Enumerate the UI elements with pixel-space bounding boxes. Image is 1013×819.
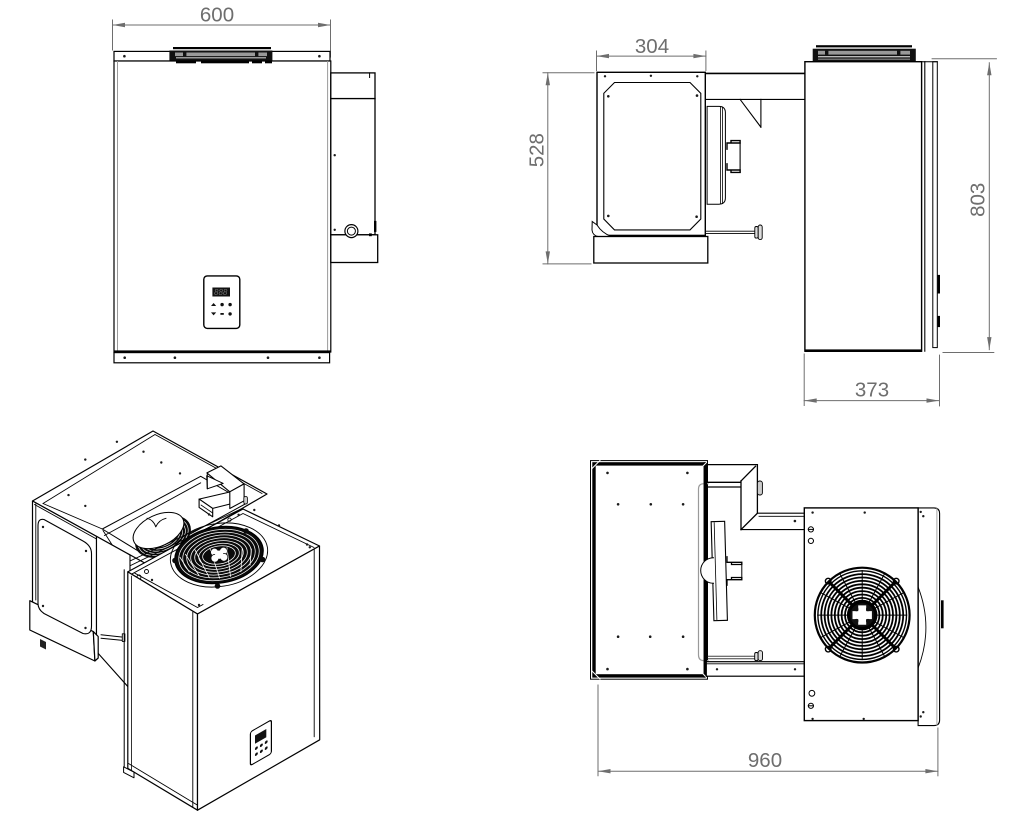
svg-text:528: 528 <box>526 133 549 167</box>
svg-text:373: 373 <box>855 379 889 402</box>
svg-text:304: 304 <box>635 35 669 58</box>
svg-text:888: 888 <box>214 288 228 297</box>
svg-text:803: 803 <box>967 183 990 217</box>
svg-text:960: 960 <box>748 749 782 772</box>
svg-text:600: 600 <box>200 4 234 27</box>
